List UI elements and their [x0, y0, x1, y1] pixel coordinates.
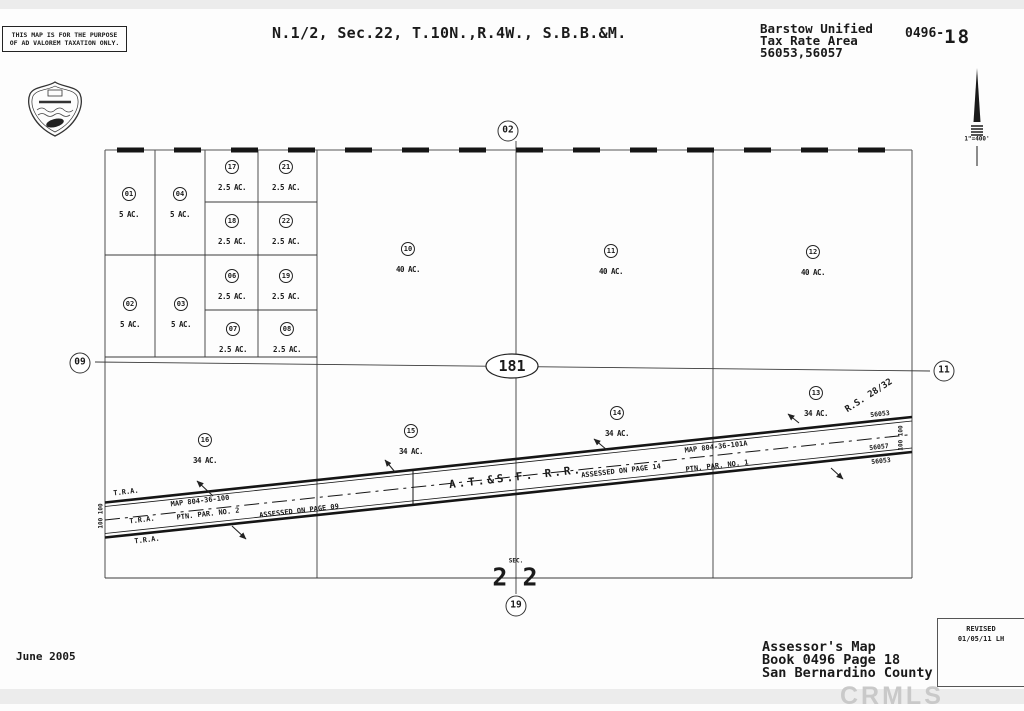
adjacent-section-top: 02 — [498, 121, 519, 142]
parcel-number-badge: 19 — [279, 269, 293, 283]
assessor-line3: San Bernardino County — [762, 667, 933, 680]
parcel-number-badge: 13 — [809, 386, 823, 400]
revised-date: 01/05/11 LH — [938, 634, 1024, 644]
disclaimer-line1: THIS MAP IS FOR THE PURPOSE — [4, 31, 125, 39]
parcel-01: 015 AC. — [119, 187, 139, 221]
parcel-12: 1240 AC. — [801, 245, 825, 279]
parcel-area: 40 AC. — [396, 265, 420, 274]
parcel-08: 082.5 AC. — [273, 322, 301, 356]
adjacent-section-left: 09 — [70, 353, 91, 374]
map-date: June 2005 — [16, 650, 76, 663]
county-seal-icon — [24, 80, 86, 138]
parcel-number-badge: 04 — [173, 187, 187, 201]
parcel-number-badge: 16 — [198, 433, 212, 447]
parcel-17: 172.5 AC. — [218, 160, 246, 194]
parcel-area: 34 AC. — [193, 456, 217, 465]
parcel-area: 2.5 AC. — [272, 292, 300, 301]
north-arrow-icon — [962, 68, 992, 168]
scale-label: 1"=400' — [964, 136, 989, 143]
map-title: N.1/2, Sec.22, T.10N.,R.4W., S.B.B.&M. — [272, 24, 627, 42]
parcel-14: 1434 AC. — [605, 406, 629, 440]
parcel-number-badge: 22 — [279, 214, 293, 228]
parcel-02: 025 AC. — [120, 297, 140, 331]
parcel-16: 1634 AC. — [193, 433, 217, 467]
parcel-13: 1334 AC. — [804, 386, 828, 420]
parcel-area: 40 AC. — [599, 267, 623, 276]
parcel-number-badge: 15 — [404, 424, 418, 438]
parcel-number-badge: 18 — [225, 214, 239, 228]
parcel-area: 2.5 AC. — [218, 183, 246, 192]
parcel-number-badge: 14 — [610, 406, 624, 420]
parcel-area: 34 AC. — [399, 447, 423, 456]
parcel-area: 2.5 AC. — [219, 345, 247, 354]
row-width-left: 100 100 — [98, 503, 105, 528]
page-number: 18 — [944, 26, 971, 48]
parcel-04: 045 AC. — [170, 187, 190, 221]
parcel-22: 222.5 AC. — [272, 214, 300, 248]
parcel-area: 34 AC. — [605, 429, 629, 438]
parcel-number-badge: 11 — [604, 244, 618, 258]
book-number: 0496- — [905, 26, 944, 41]
parcel-10: 1040 AC. — [396, 242, 420, 276]
parcel-15: 1534 AC. — [399, 424, 423, 458]
parcel-number-badge: 08 — [280, 322, 294, 336]
parcel-number-badge: 12 — [806, 245, 820, 259]
center-marker: 181 — [498, 357, 525, 375]
book-page-number: 0496-18 — [905, 26, 971, 48]
parcel-area: 5 AC. — [120, 320, 140, 329]
parcel-area: 2.5 AC. — [272, 183, 300, 192]
watermark: CRMLS — [840, 682, 944, 711]
parcel-area: 5 AC. — [119, 210, 139, 219]
row-width-right: 100 100 — [898, 425, 905, 450]
parcel-19: 192.5 AC. — [272, 269, 300, 303]
parcel-area: 34 AC. — [804, 409, 828, 418]
parcel-number-badge: 17 — [225, 160, 239, 174]
parcel-06: 062.5 AC. — [218, 269, 246, 303]
parcel-21: 212.5 AC. — [272, 160, 300, 194]
parcel-18: 182.5 AC. — [218, 214, 246, 248]
parcel-07: 072.5 AC. — [219, 322, 247, 356]
adjacent-section-right: 11 — [934, 361, 955, 382]
parcel-number-badge: 21 — [279, 160, 293, 174]
parcel-number-badge: 06 — [225, 269, 239, 283]
assessor-map-page: { "header": { "disclaimer1": "THIS MAP I… — [0, 0, 1024, 704]
adjacent-section-bottom: 19 — [506, 596, 527, 617]
parcel-number-badge: 02 — [123, 297, 137, 311]
parcel-number-badge: 03 — [174, 297, 188, 311]
tax-rate-area-block: Barstow Unified Tax Rate Area 56053,5605… — [760, 23, 873, 59]
parcel-number-badge: 01 — [122, 187, 136, 201]
parcel-03: 035 AC. — [171, 297, 191, 331]
disclaimer-line2: OF AD VALOREM TAXATION ONLY. — [4, 39, 125, 47]
revised-label: REVISED — [938, 624, 1024, 634]
parcel-11: 1140 AC. — [599, 244, 623, 278]
disclaimer-box: THIS MAP IS FOR THE PURPOSE OF AD VALORE… — [2, 26, 127, 52]
tra-codes: 56053,56057 — [760, 47, 873, 59]
parcel-number-badge: 10 — [401, 242, 415, 256]
parcel-area: 5 AC. — [170, 210, 190, 219]
parcel-area: 40 AC. — [801, 268, 825, 277]
parcel-area: 2.5 AC. — [272, 237, 300, 246]
parcel-area: 2.5 AC. — [218, 292, 246, 301]
parcel-area: 2.5 AC. — [273, 345, 301, 354]
parcel-number-badge: 07 — [226, 322, 240, 336]
parcel-area: 2.5 AC. — [218, 237, 246, 246]
assessor-block: Assessor's Map Book 0496 Page 18 San Ber… — [762, 641, 933, 680]
parcel-area: 5 AC. — [171, 320, 191, 329]
section-number: 2 2 — [492, 563, 537, 592]
revised-box: REVISED 01/05/11 LH — [937, 618, 1024, 687]
